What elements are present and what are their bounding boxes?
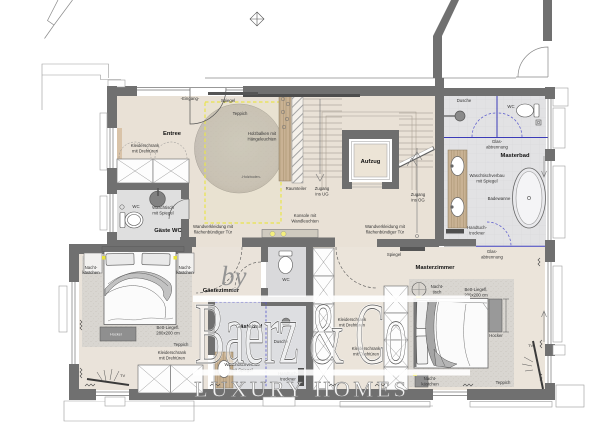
svg-text:Entree: Entree [163,131,182,137]
svg-text:Glas-: Glas- [492,139,503,144]
svg-text:Wandleuchten: Wandleuchten [291,219,319,224]
svg-text:tisch: tisch [433,290,442,295]
svg-text:TV: TV [120,373,125,378]
svg-text:-Eingang-: -Eingang- [181,96,200,101]
svg-text:ins OG: ins OG [411,198,425,203]
svg-text:trockner: trockner [469,231,485,236]
svg-text:Teppich: Teppich [496,380,511,385]
svg-text:flächenbündiger Tür: flächenbündiger Tür [366,230,405,235]
svg-text:abtrennung: abtrennung [486,145,508,150]
svg-text:Waschtisch: Waschtisch [152,205,174,210]
svg-text:Masterbad: Masterbad [501,153,530,159]
svg-text:Konsole mit: Konsole mit [294,213,317,218]
svg-text:Waschtischverbau: Waschtischverbau [470,173,506,178]
svg-text:Badewanne: Badewanne [488,196,511,201]
svg-text:WC: WC [507,104,514,109]
svg-text:Dusche: Dusche [457,98,472,103]
svg-text:Zugang: Zugang [315,186,330,191]
svg-text:Hocker: Hocker [489,333,503,338]
svg-text:Hocker: Hocker [110,333,123,337]
svg-text:Teppich: Teppich [233,111,248,116]
svg-text:Spiegel: Spiegel [221,98,235,103]
svg-text:Spiegel: Spiegel [387,252,401,257]
svg-text:Nacht-: Nacht- [431,284,444,289]
svg-text:kästchen: kästchen [82,270,100,275]
svg-text:Bett-Liegefl.: Bett-Liegefl. [157,325,180,330]
svg-text:Glas-: Glas- [487,249,498,254]
svg-text:kästchen: kästchen [421,382,439,387]
svg-text:mit Drehtüren: mit Drehtüren [132,149,159,154]
svg-text:Baerz & Co: Baerz & Co [195,286,407,383]
svg-text:Kleiderschrank: Kleiderschrank [131,143,160,148]
svg-text:abtrennung: abtrennung [481,255,503,260]
svg-text:ins UG: ins UG [315,192,329,197]
svg-text:Zugang: Zugang [411,192,426,197]
svg-text:Handtuch-: Handtuch- [467,225,487,230]
svg-text:Gäste WC: Gäste WC [154,228,182,234]
svg-text:Raumteiler: Raumteiler [286,186,307,191]
svg-text:-Holzboden-: -Holzboden- [241,175,261,179]
svg-text:flächenbündiger Tür: flächenbündiger Tür [194,230,233,235]
svg-text:kästchen: kästchen [176,270,194,275]
svg-text:Masterzimmer: Masterzimmer [416,265,456,271]
svg-text:mit Spiegel: mit Spiegel [152,211,173,216]
svg-text:Hängeleuchten: Hängeleuchten [248,137,278,142]
svg-text:WC: WC [132,204,139,209]
svg-text:mit Drehtüren: mit Drehtüren [159,356,186,361]
svg-text:TV: TV [528,343,533,348]
svg-text:Bett-Liegefl.: Bett-Liegefl. [465,287,488,292]
svg-text:Kleiderschrank: Kleiderschrank [158,350,187,355]
svg-text:Aufzug: Aufzug [361,159,381,165]
svg-text:mit Spiegel: mit Spiegel [476,179,497,184]
svg-text:Wandverkleidung mit: Wandverkleidung mit [193,224,234,229]
svg-text:Holzbalken mit: Holzbalken mit [248,131,277,136]
svg-text:Nacht-: Nacht- [424,376,437,381]
svg-text:Teppich: Teppich [174,342,189,347]
svg-text:WC: WC [282,277,289,282]
svg-text:280x200 cm: 280x200 cm [156,331,180,336]
svg-text:Wandverkleidung mit: Wandverkleidung mit [365,224,406,229]
